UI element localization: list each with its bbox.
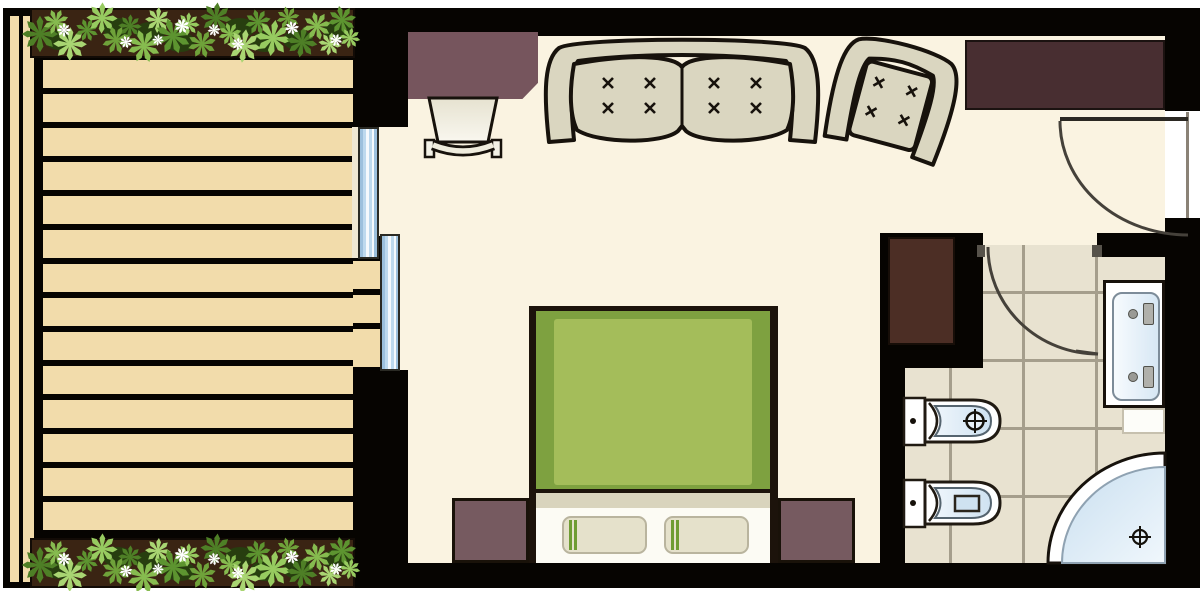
folded-blanket bbox=[536, 493, 770, 508]
planter-bottom bbox=[30, 538, 355, 588]
wardrobe bbox=[965, 40, 1165, 110]
sliding-window-panel-lower bbox=[380, 234, 400, 371]
deck-planks-by-window bbox=[353, 258, 382, 370]
wall-right-upper bbox=[1165, 8, 1200, 111]
pillow-right-stripes bbox=[669, 520, 681, 550]
faucet-handle-icon bbox=[1128, 309, 1138, 319]
toilet-cistern-icon bbox=[955, 496, 979, 511]
faucet-handle-icon bbox=[1128, 372, 1138, 382]
planter-top bbox=[30, 8, 355, 58]
desk-chair bbox=[423, 96, 503, 162]
wall-above-vanity bbox=[1097, 233, 1165, 257]
wall-right-lower bbox=[1165, 218, 1200, 588]
nightstand-left bbox=[452, 498, 529, 563]
bed-frame-right-rail bbox=[770, 306, 778, 563]
nightstand-right bbox=[778, 498, 855, 563]
entrance-door-arc bbox=[1060, 121, 1189, 236]
vanity-shelf bbox=[1122, 408, 1165, 434]
terrace-rail-inner bbox=[23, 16, 34, 582]
duvet bbox=[554, 319, 752, 485]
bathroom-door-arc bbox=[988, 247, 1099, 355]
faucet-icon bbox=[1143, 303, 1154, 325]
desk bbox=[408, 32, 538, 99]
wall-bathroom-left bbox=[880, 345, 905, 563]
bed-frame-left-rail bbox=[529, 306, 536, 563]
bidet bbox=[903, 397, 1003, 447]
closet bbox=[888, 237, 955, 345]
floor-plan bbox=[0, 0, 1200, 591]
sliding-window-panel-upper bbox=[358, 127, 379, 259]
faucet-icon bbox=[1143, 366, 1154, 388]
pillow-left-stripes bbox=[567, 520, 579, 550]
pillow-right bbox=[664, 516, 749, 554]
floor-by-window-upper bbox=[379, 127, 409, 236]
bathtub bbox=[1048, 453, 1165, 563]
sofa bbox=[543, 34, 821, 146]
wall-closet-left bbox=[880, 233, 888, 345]
wall-bottom bbox=[353, 563, 1200, 588]
vanity-counter bbox=[1103, 280, 1165, 408]
wall-top bbox=[353, 8, 1200, 36]
floor-by-window-lower bbox=[399, 234, 409, 370]
pillow-left bbox=[562, 516, 647, 554]
deck-planks bbox=[43, 60, 353, 536]
toilet bbox=[903, 479, 1003, 529]
terrace-rail-outer bbox=[10, 16, 19, 582]
bathroom-door-jamb-left bbox=[977, 245, 985, 257]
